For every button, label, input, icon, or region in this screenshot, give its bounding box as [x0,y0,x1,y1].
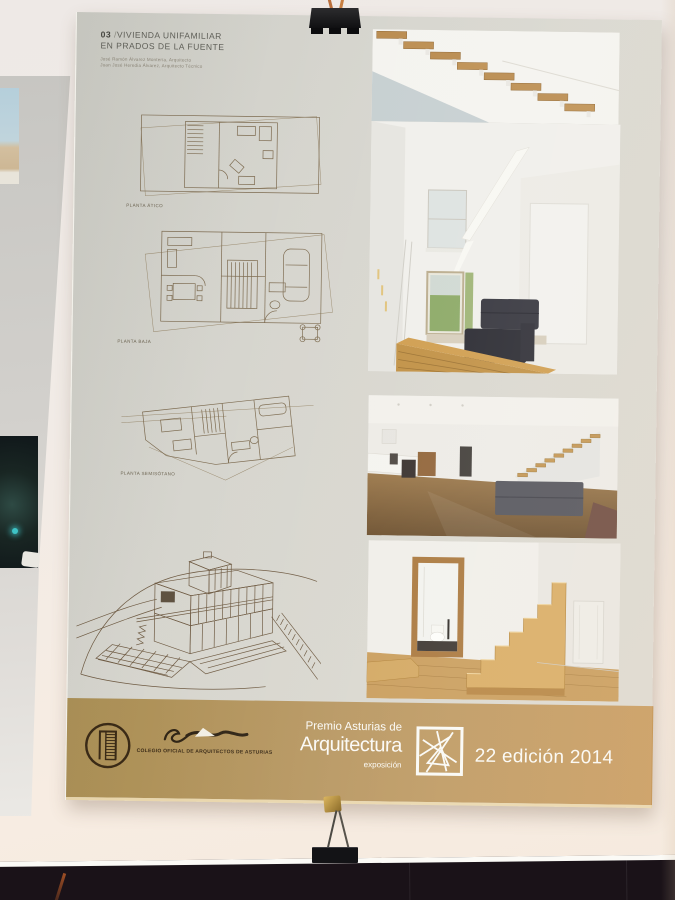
premio-line-2: Arquitectura [272,733,402,757]
wall-shading-right [661,0,675,900]
award-geometric-icon [414,725,465,778]
plan-label-baja: PLANTA BAJA [117,339,151,344]
white-chair [21,551,41,568]
photo-hallway-staircase [366,540,620,702]
photo-of-exhibition-wall: 03 / VIVIENDA UNIFAMILIAR EN PRADOS DE L… [0,0,675,900]
glow-light [12,528,18,534]
clip-body [309,8,361,28]
poster-header: 03 / VIVIENDA UNIFAMILIAR EN PRADOS DE L… [100,29,320,53]
poster-seam [409,863,411,900]
plan-label-semisotano: PLANTA SEMISÓTANO [121,471,176,477]
coaa-column-logo [82,718,133,773]
neighbour-photo-night-building [0,436,38,568]
plan-label-atico: PLANTA ÁTICO [126,203,163,209]
reflection-streak [50,873,67,900]
poster-seam [626,860,628,900]
neighbour-photo-sky [0,88,19,184]
premio-title-block: Premio Asturias de Arquitectura exposici… [271,720,402,770]
house-perspective-sketch [76,526,323,695]
planta-baja-drawing [142,225,339,343]
photo-living-room [367,395,619,538]
clip-wire [338,810,350,849]
architect-credits: José Ramón Álvarez Montería, Arquitecto … [100,56,300,71]
clip-tooth [311,28,323,34]
entry-number: 03 [101,29,112,39]
competition-poster: 03 / VIVIENDA UNIFAMILIAR EN PRADOS DE L… [65,12,662,808]
binder-clip-top-icon [305,0,365,42]
premio-line-3: exposición [271,759,401,770]
edition-label: 22 edición 2014 [474,746,613,770]
clip-tooth [347,28,359,34]
title-text-1: VIVIENDA UNIFAMILIAR [117,30,222,42]
clip-wire [327,810,338,849]
photo-double-height-hall [368,121,620,374]
coaa-signature-logo [157,723,249,750]
clip-body [312,847,358,863]
poster-title-line2: EN PRADOS DE LA FUENTE [100,40,320,54]
photo-floating-staircase [372,29,620,124]
clip-tooth [329,28,341,34]
planta-atico-drawing [134,111,325,202]
binder-clip-bottom-icon [305,792,375,872]
